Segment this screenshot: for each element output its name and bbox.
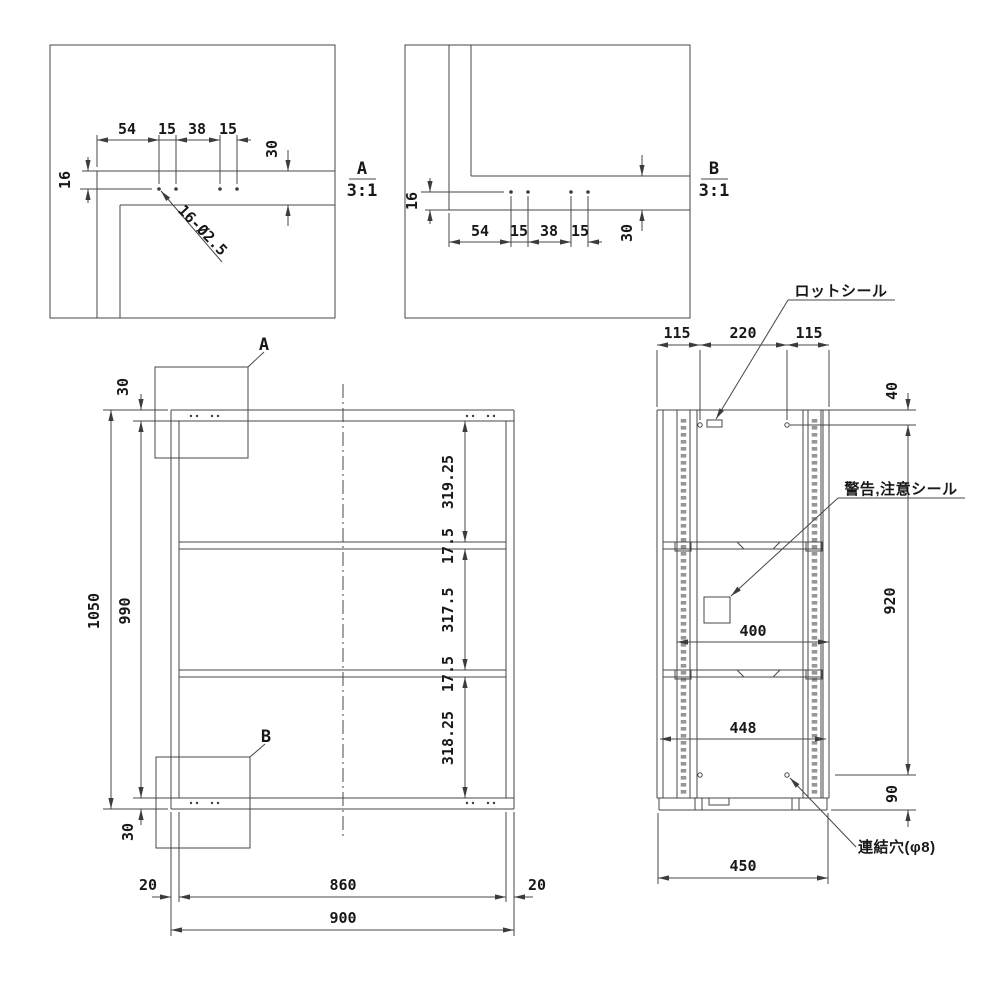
- detail-b-view: 16 54 15 38 15 30 B 3:1: [403, 45, 729, 318]
- callout-b-letter: B: [261, 727, 271, 747]
- detail-callout-a: A: [155, 335, 269, 458]
- view-a-scale: 3:1: [347, 181, 378, 201]
- dim-side-115-back: 115: [795, 324, 822, 342]
- detail-a-hole-note-leader: 16-Ø2.5: [161, 191, 231, 262]
- detail-b-16-dim: 16: [403, 178, 430, 224]
- dim-side-920: 920: [881, 587, 899, 614]
- dim-b-15a: 15: [510, 222, 528, 240]
- dim-front-20-left: 20: [139, 876, 157, 894]
- detail-b-geometry: [421, 45, 690, 210]
- dim-b-54: 54: [471, 222, 489, 240]
- dim-front-990: 990: [116, 597, 134, 624]
- dim-a-30: 30: [263, 140, 281, 158]
- dim-front-20-right: 20: [528, 876, 546, 894]
- side-400-dim: 400: [677, 622, 829, 642]
- dim-gap-17.5-b: 17.5: [439, 656, 457, 692]
- detail-a-view-label: A 3:1: [347, 159, 378, 201]
- side-posts: [677, 410, 821, 798]
- dim-side-448: 448: [729, 719, 756, 737]
- detail-a-frame: [50, 45, 335, 318]
- side-outline: [657, 410, 916, 798]
- dim-b-30: 30: [618, 224, 636, 242]
- warning-seal-mark: [704, 597, 730, 623]
- front-view: A B 1050 990 30 30 319.25 17.5: [85, 335, 546, 936]
- detail-a-holes: [157, 187, 239, 191]
- front-left-dims: 1050 990 30 30: [85, 378, 176, 841]
- detail-b-holes: [509, 190, 590, 194]
- side-450-dim: 450: [658, 813, 828, 884]
- dim-a-54: 54: [118, 120, 136, 138]
- dim-a-15b: 15: [219, 120, 237, 138]
- dim-b-15b: 15: [571, 222, 589, 240]
- dim-side-40: 40: [883, 382, 901, 400]
- dim-front-top-30: 30: [114, 378, 132, 396]
- detail-b-view-label: B 3:1: [699, 159, 730, 201]
- dim-a-16: 16: [56, 171, 74, 189]
- dim-a-38: 38: [188, 120, 206, 138]
- view-b-scale: 3:1: [699, 181, 730, 201]
- side-right-dims: 40 920 90: [790, 382, 916, 827]
- dim-side-115-front: 115: [663, 324, 690, 342]
- dim-gap-17.5-a: 17.5: [439, 528, 457, 564]
- warning-seal-callout: 警告,注意シール: [731, 480, 965, 596]
- dim-bay-318.25: 318.25: [439, 711, 457, 765]
- dim-side-400: 400: [739, 622, 766, 640]
- detail-a-30-dim: 30: [263, 140, 288, 226]
- view-b-letter: B: [709, 159, 719, 179]
- warning-seal-label: 警告,注意シール: [843, 480, 957, 498]
- dim-side-90: 90: [883, 785, 901, 803]
- dim-side-220: 220: [729, 324, 756, 342]
- front-bay-dim-chain: 319.25 17.5 317.5 17.5 318.25: [439, 421, 465, 798]
- dim-bay-317.5: 317.5: [439, 587, 457, 632]
- hole-note-16-d2.5: 16-Ø2.5: [174, 201, 231, 259]
- shelf-technical-drawing: 54 15 38 15 16 30 16-Ø2.5 A 3:1: [0, 0, 1000, 1000]
- lot-seal-callout: ロットシール: [716, 283, 895, 419]
- detail-b-bottom-dim-chain: 54 15 38 15: [449, 196, 602, 247]
- detail-b-frame: [405, 45, 690, 318]
- view-a-letter: A: [357, 159, 367, 179]
- dim-a-15a: 15: [158, 120, 176, 138]
- detail-a-16-dim: 16: [56, 157, 88, 203]
- joint-hole-callout: 連結穴(φ8): [790, 778, 936, 856]
- side-shelves: [663, 542, 823, 679]
- side-top-dim-chain: 115 220 115: [657, 324, 829, 420]
- dim-front-860: 860: [329, 876, 356, 894]
- joint-hole-label: 連結穴(φ8): [858, 838, 936, 856]
- dim-b-16: 16: [403, 192, 421, 210]
- dim-b-38: 38: [540, 222, 558, 240]
- side-view: 115 220 115 40 920 90 400 448 450: [657, 283, 965, 884]
- front-bottom-dims: 20 860 20 900: [139, 812, 546, 936]
- detail-b-30-dim: 30: [618, 155, 642, 242]
- dim-front-1050: 1050: [85, 593, 103, 629]
- lot-seal-mark: [707, 420, 722, 427]
- detail-a-view: 54 15 38 15 16 30 16-Ø2.5 A 3:1: [50, 45, 377, 318]
- dim-front-bottom-30: 30: [119, 823, 137, 841]
- dim-side-450: 450: [729, 857, 756, 875]
- lot-seal-label: ロットシール: [794, 283, 887, 300]
- callout-a-letter: A: [259, 335, 269, 355]
- side-base: [659, 798, 827, 810]
- detail-a-top-dim-chain: 54 15 38 15: [97, 120, 251, 184]
- dim-bay-319.25: 319.25: [439, 455, 457, 509]
- detail-callout-b: B: [156, 727, 271, 848]
- dim-front-900: 900: [329, 909, 356, 927]
